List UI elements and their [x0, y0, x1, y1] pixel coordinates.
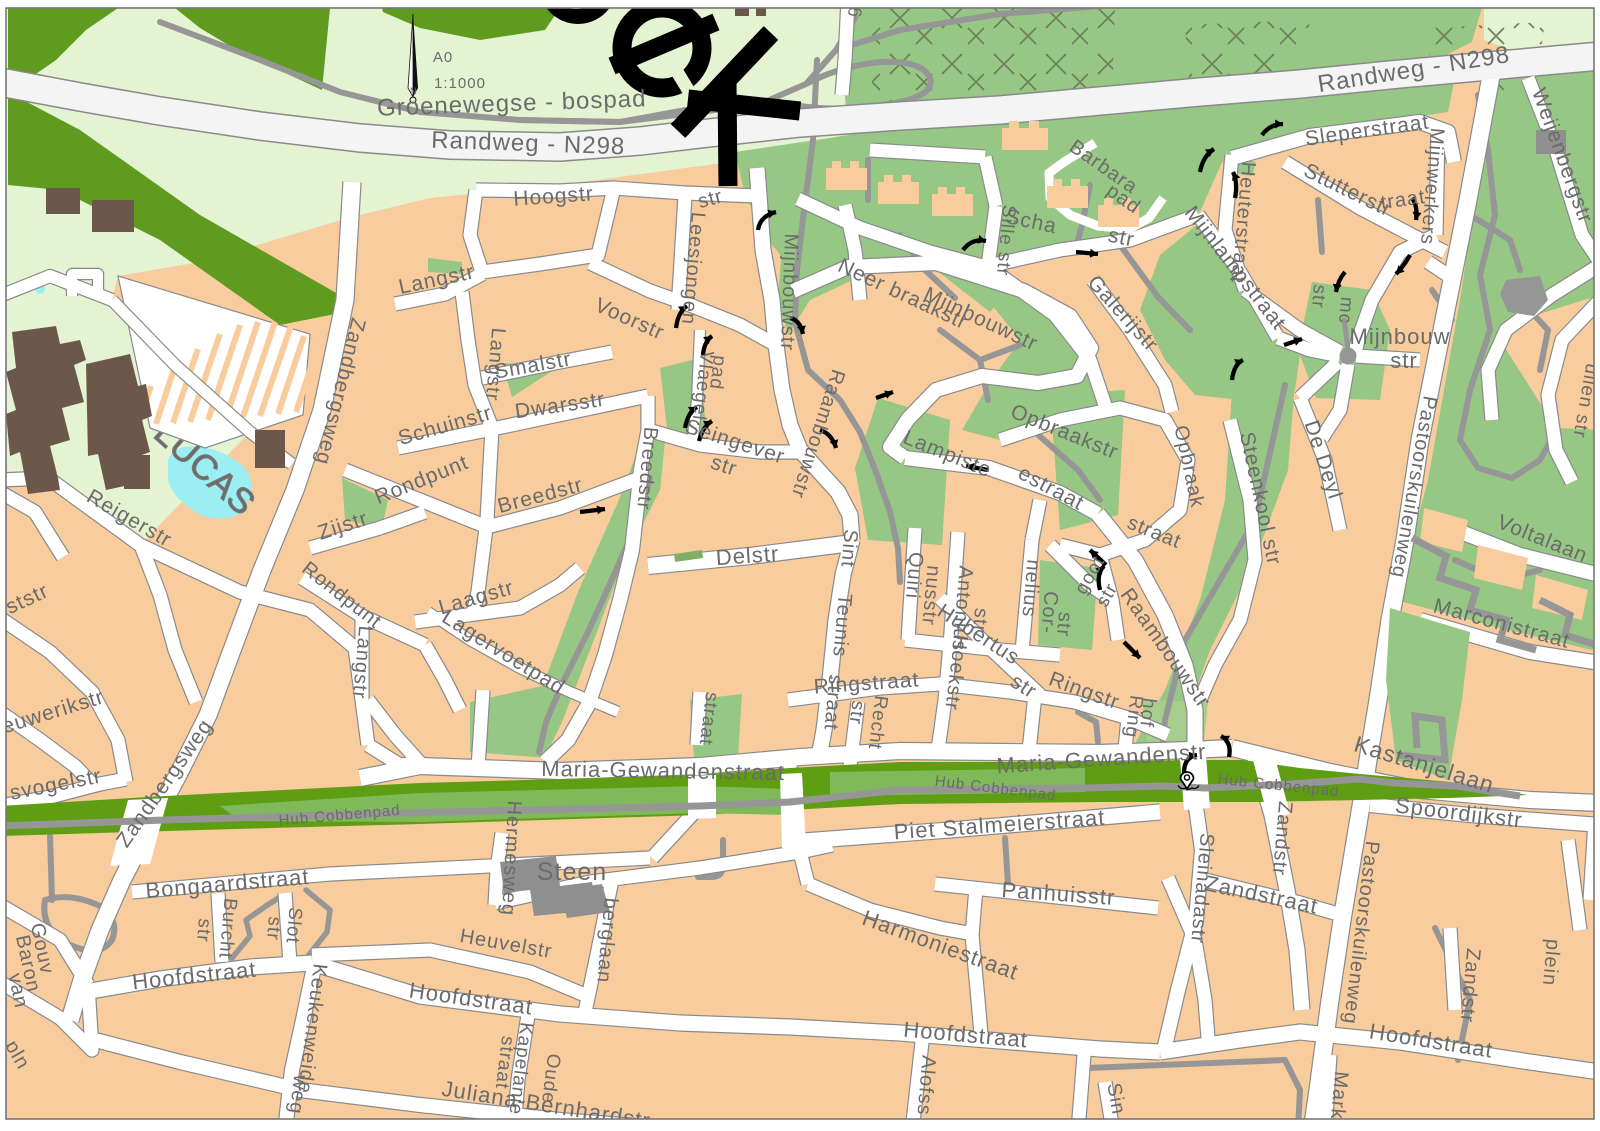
svg-text:hof: hof: [1135, 697, 1159, 729]
svg-text:Delstr: Delstr: [715, 541, 780, 570]
svg-text:A0: A0: [433, 49, 453, 66]
svg-text:Mijnbouwstr: Mijnbouwstr: [776, 233, 802, 351]
svg-text:Mijnbouw: Mijnbouw: [1350, 324, 1451, 349]
svg-text:pad: pad: [705, 354, 730, 391]
svg-text:1:1000: 1:1000: [434, 75, 486, 92]
svg-text:str: str: [1052, 611, 1076, 638]
svg-text:Sint: Sint: [836, 528, 861, 568]
svg-text:str: str: [192, 918, 215, 944]
svg-text:Steen: Steen: [537, 858, 607, 886]
svg-text:g: g: [841, 4, 863, 18]
svg-text:plein: plein: [1538, 938, 1564, 987]
svg-text:str: str: [1307, 284, 1330, 310]
svg-text:str: str: [1390, 348, 1417, 373]
svg-text:str: str: [262, 916, 285, 942]
svg-text:Mark: Mark: [1326, 1070, 1352, 1120]
svg-text:Maria-Gewandenstraat: Maria-Gewandenstraat: [541, 756, 785, 785]
svg-text:mc: mc: [1334, 296, 1357, 325]
svg-text:str: str: [845, 699, 869, 725]
